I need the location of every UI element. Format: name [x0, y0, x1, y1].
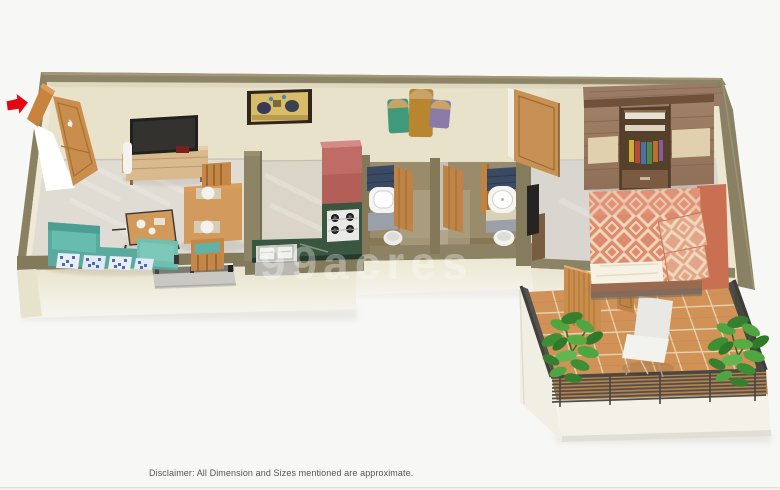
- svg-text:99acres: 99acres: [260, 237, 473, 289]
